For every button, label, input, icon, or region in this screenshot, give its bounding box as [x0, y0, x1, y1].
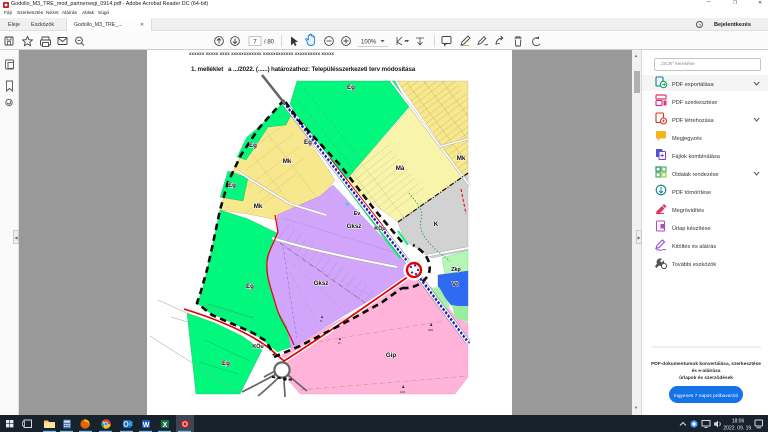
- svg-text:Gksz: Gksz: [314, 280, 329, 287]
- svg-text:Eg: Eg: [304, 139, 312, 146]
- svg-text:Eg: Eg: [222, 360, 230, 367]
- svg-text:Eg: Eg: [228, 182, 236, 189]
- svg-text:K: K: [434, 221, 439, 228]
- svg-text:W: W: [143, 422, 150, 429]
- svg-text:Megjegyzés: Megjegyzés: [672, 136, 702, 142]
- svg-text:Megrövidítés: Megrövidítés: [672, 208, 704, 214]
- svg-text:Mk: Mk: [283, 158, 292, 165]
- svg-text:100%: 100%: [361, 40, 377, 46]
- svg-text:Má: Má: [396, 165, 405, 172]
- svg-text:PDF exportálása: PDF exportálása: [672, 82, 715, 88]
- svg-text:2022. 09. 19.: 2022. 09. 19.: [723, 426, 752, 432]
- svg-text:PDF-dokumentumok konvertálása,: PDF-dokumentumok konvertálása, szerkeszt…: [651, 361, 761, 367]
- svg-text:200: 200: [428, 328, 433, 332]
- svg-text:KÖu: KÖu: [374, 225, 385, 232]
- svg-text:Mk: Mk: [457, 155, 466, 162]
- svg-text:és e-aláírása: és e-aláírása: [692, 368, 721, 374]
- svg-text:További eszközök: További eszközök: [672, 262, 716, 268]
- svg-text:KÖu: KÖu: [252, 343, 263, 350]
- svg-text:PDF tömörítése: PDF tömörítése: [672, 190, 711, 196]
- svg-text:18:06: 18:06: [732, 419, 745, 425]
- svg-text:Eg: Eg: [347, 84, 355, 91]
- svg-text:100: 100: [400, 390, 405, 394]
- svg-text:X: X: [163, 422, 168, 429]
- svg-text:Fájlok kombinálása: Fájlok kombinálása: [672, 154, 721, 160]
- svg-text:PDF szerkesztése: PDF szerkesztése: [672, 100, 717, 106]
- svg-text:Ev: Ev: [354, 211, 361, 217]
- svg-text:Kitöltés és aláírás: Kitöltés és aláírás: [672, 244, 716, 250]
- svg-text:Mk: Mk: [254, 203, 263, 210]
- svg-text:Gip: Gip: [386, 352, 397, 359]
- svg-text:Gksz: Gksz: [347, 223, 362, 230]
- svg-text:/ 80: / 80: [264, 40, 275, 46]
- svg-text:Ûrlap készítése: Ûrlap készítése: [672, 225, 711, 232]
- svg-text:Oldalak rendezése: Oldalak rendezése: [672, 172, 719, 178]
- svg-text:Vt: Vt: [452, 281, 458, 288]
- svg-text:ûrlapok és szerzôdések: ûrlapok és szerzôdések: [679, 375, 733, 381]
- svg-text:Ingyenes 7 napos próbaverzió: Ingyenes 7 napos próbaverzió: [674, 393, 739, 399]
- svg-text:Eg: Eg: [249, 142, 257, 149]
- svg-text:Eg: Eg: [246, 283, 254, 290]
- svg-text:Zkp: Zkp: [451, 267, 461, 273]
- svg-text:PDF létrehozása: PDF létrehozása: [672, 118, 715, 124]
